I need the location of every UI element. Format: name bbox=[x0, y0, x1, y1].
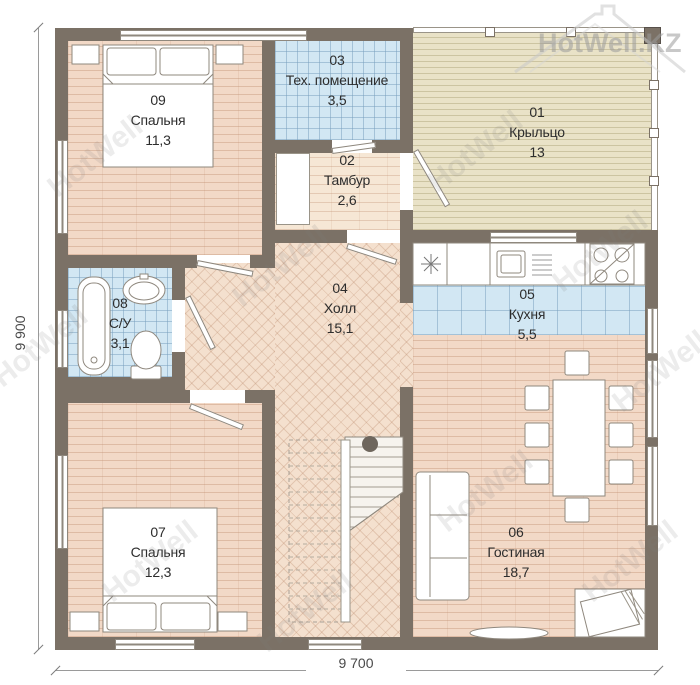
dimension-height-label: 9 900 bbox=[12, 303, 28, 363]
label-room-04: 04 Холл 15,1 bbox=[280, 278, 400, 338]
room-name: Кухня bbox=[467, 304, 587, 324]
label-room-07: 07 Спальня 12,3 bbox=[98, 522, 218, 582]
room-number: 04 bbox=[280, 278, 400, 298]
fridge-icon bbox=[421, 254, 441, 274]
dimension-width-label: 9 700 bbox=[306, 655, 406, 671]
room-area: 12,3 bbox=[98, 562, 218, 582]
room-number: 08 bbox=[70, 293, 170, 313]
room-number: 03 bbox=[262, 50, 412, 70]
room-number: 01 bbox=[477, 102, 597, 122]
label-room-02: 02 Тамбур 2,6 bbox=[287, 150, 407, 210]
armchair bbox=[575, 588, 646, 637]
label-room-01: 01 Крыльцо 13 bbox=[477, 102, 597, 162]
room-area: 5,5 bbox=[467, 324, 587, 344]
room-area: 3,1 bbox=[70, 333, 170, 353]
room-name: Тамбур bbox=[287, 170, 407, 190]
label-room-03: 03 Тех. помещение 3,5 bbox=[262, 50, 412, 110]
room-name: Холл bbox=[280, 298, 400, 318]
label-room-09: 09 Спальня 11,3 bbox=[98, 90, 218, 150]
room-area: 13 bbox=[477, 142, 597, 162]
room-name: Спальня bbox=[98, 542, 218, 562]
room-name: С/У bbox=[70, 313, 170, 333]
dining-table bbox=[525, 351, 633, 522]
room-number: 02 bbox=[287, 150, 407, 170]
room-area: 3,5 bbox=[262, 90, 412, 110]
room-number: 06 bbox=[456, 522, 576, 542]
room-name: Гостиная bbox=[456, 542, 576, 562]
room-name: Тех. помещение bbox=[262, 70, 412, 90]
stair-column bbox=[362, 436, 378, 452]
room-area: 11,3 bbox=[98, 130, 218, 150]
label-room-08: 08 С/У 3,1 bbox=[70, 293, 170, 353]
room-number: 05 bbox=[467, 284, 587, 304]
label-room-06: 06 Гостиная 18,7 bbox=[456, 522, 576, 582]
room-area: 15,1 bbox=[280, 318, 400, 338]
room-name: Спальня bbox=[98, 110, 218, 130]
room-number: 07 bbox=[98, 522, 218, 542]
floor-plan: 01 Крыльцо 13 02 Тамбур 2,6 03 Тех. поме… bbox=[0, 0, 700, 685]
staircase bbox=[289, 436, 403, 622]
room-area: 2,6 bbox=[287, 190, 407, 210]
stove bbox=[590, 244, 634, 284]
dimension-line-left bbox=[38, 28, 39, 650]
label-room-05: 05 Кухня 5,5 bbox=[467, 284, 587, 344]
tv-console bbox=[470, 627, 548, 639]
room-number: 09 bbox=[98, 90, 218, 110]
room-area: 18,7 bbox=[456, 562, 576, 582]
room-name: Крыльцо bbox=[477, 122, 597, 142]
